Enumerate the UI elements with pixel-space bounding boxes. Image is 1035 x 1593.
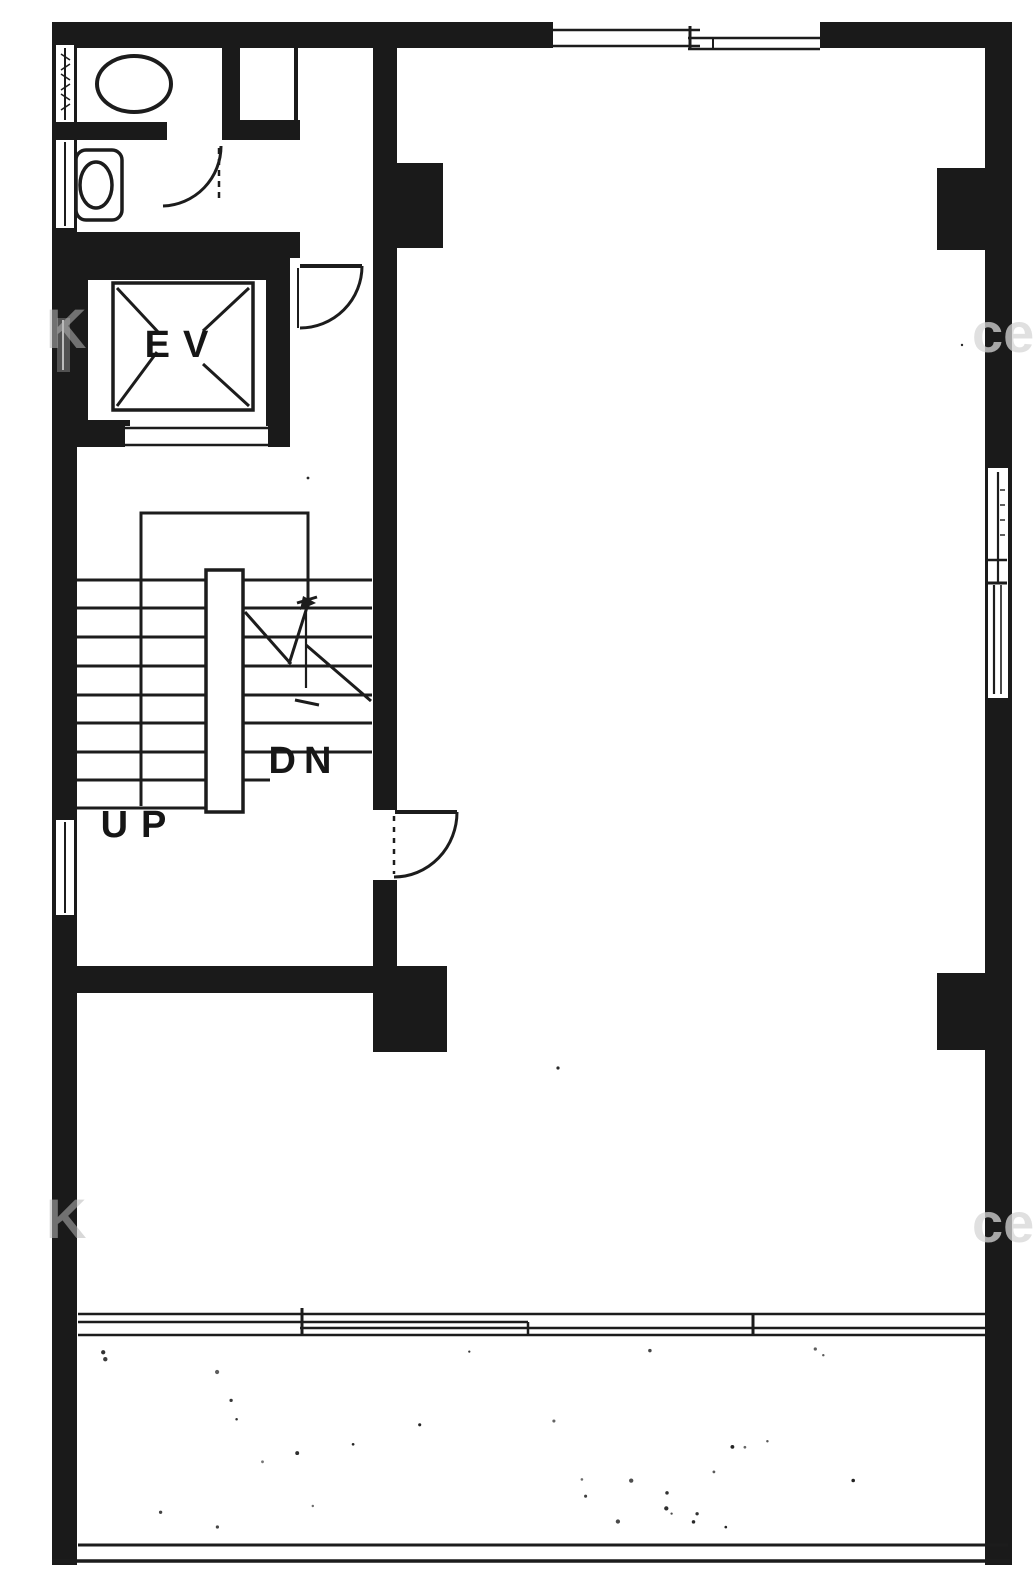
floor-plan-drawing [0, 0, 1035, 1593]
toilet-icon [97, 56, 171, 112]
right-exterior-wall [985, 24, 1012, 1565]
elevator-label: EV [130, 324, 236, 367]
openings [56, 26, 1008, 915]
pillar-right-upper [937, 168, 985, 250]
washroom-bottom-wall [52, 232, 300, 258]
balcony-edge [52, 1545, 1010, 1561]
balcony-speckle-dots [101, 1347, 855, 1528]
elevator-right-wall [266, 256, 290, 447]
stairhall-bottom-wall [60, 966, 373, 993]
top-wall-left [52, 22, 553, 48]
floor-plan: EV UP DN K ce K ce [0, 0, 1035, 1593]
shaft-bottom-wall [222, 120, 300, 140]
toilet-door-icon [163, 146, 221, 206]
stairs-up-label: UP [100, 804, 180, 847]
elevator-bottom-wall-left [52, 420, 130, 447]
pillar-right-middle [937, 973, 985, 1050]
stair-break-line [245, 596, 371, 705]
elevator-lobby-door-icon [298, 266, 362, 328]
elevator-left-wall [74, 256, 88, 447]
top-wall-right [820, 22, 1012, 48]
stairs-down-label: DN [268, 740, 340, 783]
shaft-partition-line [294, 45, 298, 120]
balcony [52, 1308, 1010, 1561]
stairhall-door-icon [394, 812, 457, 877]
pillar-main-top [395, 163, 443, 248]
balcony-window-band [78, 1308, 985, 1335]
walls [52, 22, 1012, 1565]
toilet-bottom-wall [52, 122, 167, 140]
stair-stringer [206, 570, 243, 812]
toilet-right-wall [222, 45, 240, 127]
scan-dots [307, 344, 964, 1070]
sink-icon [76, 150, 122, 220]
elevator-top-wall [60, 256, 290, 280]
elevator-bottom-wall-right [266, 420, 290, 447]
stairhall-corner-block [373, 966, 447, 1052]
